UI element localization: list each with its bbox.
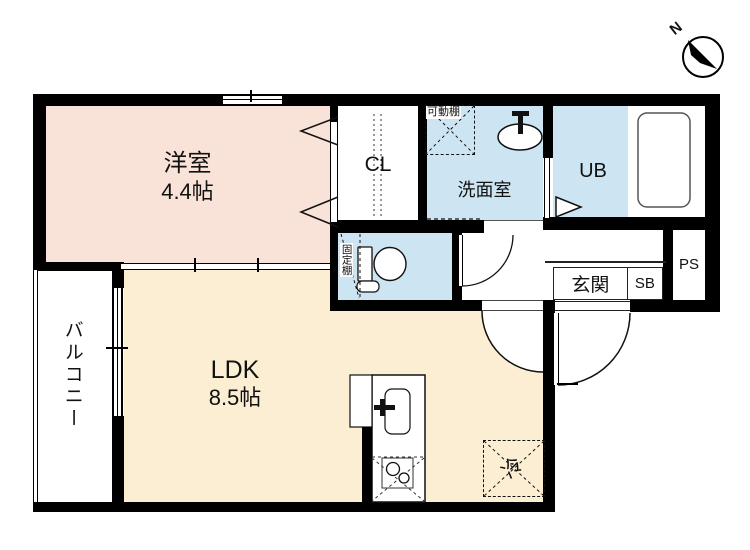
window-balcony-door <box>112 288 123 416</box>
entrance-label: 玄関 <box>571 270 609 297</box>
ldk-label: LDK 8.5帖 <box>160 352 310 414</box>
wall-washroom-bath <box>543 106 553 158</box>
window-midline <box>223 99 282 100</box>
partition-tick-1 <box>194 258 196 272</box>
entrance-doorway <box>555 301 630 311</box>
wall-toilet-left <box>330 222 338 311</box>
entrance-step-line <box>545 261 666 263</box>
wall-balcony-top <box>33 262 124 271</box>
bath-door-leaf <box>544 158 550 218</box>
toilet-door-arc <box>462 235 513 286</box>
ldk-size: 8.5帖 <box>209 385 262 411</box>
window-western-room-top <box>222 95 283 105</box>
sliding-partition-western-ldk <box>121 263 330 270</box>
wall-left <box>33 94 46 270</box>
washroom-doorway <box>484 220 543 233</box>
window-midline <box>117 288 118 416</box>
toilet-door-leaf <box>458 235 463 286</box>
western-room-size: 4.4帖 <box>161 179 214 205</box>
balcony-rail <box>33 270 38 502</box>
entrance-zone: 玄関 <box>554 268 627 299</box>
movable-shelf-label: 可動棚 <box>426 106 461 119</box>
wall-entrance-bottom <box>630 300 720 312</box>
entrance-door-base-line <box>557 383 578 385</box>
fixed-shelf-label: 固定棚 <box>340 243 353 277</box>
balcony-window-tick <box>106 347 128 349</box>
entrance-door-swing <box>558 313 630 385</box>
unit-bath-label: UB <box>575 160 611 182</box>
washroom-label: 洗面室 <box>442 180 527 202</box>
ldk-doorway <box>482 300 543 311</box>
entrance-step-area: 玄関 SB <box>553 267 663 300</box>
bathtub <box>638 113 690 207</box>
toilet-room-floor <box>337 233 452 300</box>
wall-under-bath <box>543 217 706 230</box>
entrance-door-arc <box>558 313 630 385</box>
shoe-box-label: SB <box>635 275 655 292</box>
compass-north-label: N <box>667 19 687 40</box>
wall-bottom <box>33 502 555 512</box>
western-room-name: 洋室 <box>164 150 212 179</box>
wall-ldk-top <box>330 300 482 311</box>
partition-tick-2 <box>257 258 259 272</box>
compass-needle <box>688 40 717 69</box>
wall-ldk-left-lower <box>112 416 124 502</box>
floor-plan: 玄関 SB <box>0 0 750 550</box>
compass-circle <box>683 37 723 77</box>
shoe-box: SB <box>627 268 662 299</box>
wall-right <box>705 94 720 312</box>
wall-top <box>33 94 720 106</box>
wall-closet-front-cap-top <box>330 106 338 122</box>
wall-under-closet <box>330 220 484 233</box>
pipe-space-label: PS <box>673 255 705 275</box>
wall-ps-left <box>663 228 673 303</box>
ldk-name: LDK <box>211 355 260 385</box>
closet-label: CL <box>358 152 398 178</box>
closet-front-opening <box>330 122 338 222</box>
window-top-tick <box>250 90 252 102</box>
western-room-label: 洋室 4.4帖 <box>115 146 260 210</box>
balcony-label: バルコニー <box>60 320 83 455</box>
toilet-door-swing <box>462 235 513 286</box>
entrance-door-leaf <box>553 313 559 385</box>
